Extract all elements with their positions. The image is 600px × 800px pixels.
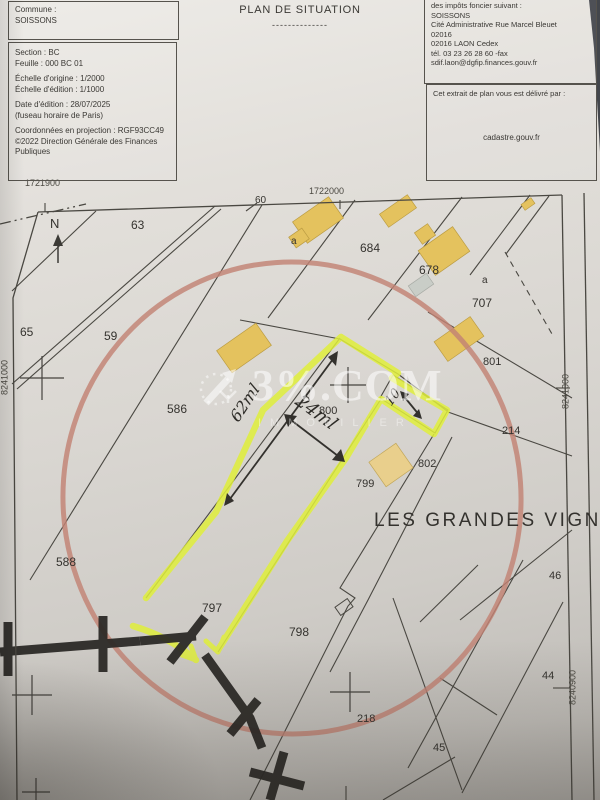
parcel-586: 586	[167, 403, 187, 415]
north-arrow-icon	[53, 234, 63, 263]
office-address-lines: SOISSONSCité Administrative Rue Marcel B…	[431, 11, 590, 68]
text-line: Échelle d'édition : 1/1000	[15, 85, 170, 96]
commune-value: SOISSONS	[15, 15, 172, 26]
grid-coord-8241000-right: 8241000	[562, 370, 571, 414]
grid-cross-icons	[12, 356, 370, 800]
handwritten-measure-10: 10	[384, 386, 403, 408]
title-underline: --------------	[225, 20, 375, 30]
handwritten-measure-62ml: 62ml	[228, 381, 263, 425]
parcel-60: 60	[255, 196, 266, 206]
office-clipped-line: des impôts foncier suivant :	[431, 1, 590, 11]
parcel-684: 684	[360, 242, 380, 254]
text-line: Cité Administrative Rue Marcel Bleuet	[431, 20, 590, 30]
parcel-707: 707	[472, 297, 492, 309]
parcel-63: 63	[131, 219, 144, 231]
parcel-a-1: a	[291, 237, 297, 247]
black-marker-crosses	[0, 616, 304, 800]
parcel-588: 588	[56, 556, 76, 568]
parcel-boundary-lines	[12, 195, 572, 800]
grid-coord-1722000: 1722000	[309, 187, 344, 196]
building-footprints	[217, 195, 535, 616]
issued-label: Cet extrait de plan vous est délivré par…	[433, 89, 590, 99]
parcel-801: 801	[483, 357, 501, 368]
text-line: SOISSONS	[431, 11, 590, 21]
parcel-44: 44	[542, 671, 554, 682]
handwritten-measure-24ml: 24ml	[291, 393, 340, 433]
cadastral-plan-photo: 17219001722000824100082410008240900N6360…	[0, 0, 600, 800]
parcel-797: 797	[202, 602, 222, 614]
text-line: tél. 03 23 26 28 60 -fax	[431, 49, 590, 59]
grid-coord-8241000-left: 8241000	[1, 356, 10, 400]
parcel-65: 65	[20, 326, 33, 338]
parcel-46: 46	[549, 571, 561, 582]
text-line: 02016 LAON Cedex	[431, 39, 590, 49]
parcel-a-2: a	[482, 276, 488, 286]
cadastre-site-label: cadastre.gouv.fr	[433, 133, 590, 142]
issued-by-box: Cet extrait de plan vous est délivré par…	[426, 84, 597, 181]
yellow-highlight-parcel	[133, 337, 447, 660]
commune-label: Commune :	[15, 4, 172, 15]
parcel-800: 800	[319, 406, 337, 417]
parcel-802: 802	[418, 459, 436, 470]
north-label: N	[50, 217, 59, 230]
parcel-59: 59	[104, 330, 117, 342]
watermark-subtitle: IMMOBILIER	[258, 417, 443, 429]
tax-office-box: des impôts foncier suivant : SOISSONSCit…	[424, 0, 597, 84]
parcel-798: 798	[289, 626, 309, 638]
lieu-dit-les-grandes-vignes: LES GRANDES VIGNES	[374, 511, 600, 530]
coordinate-ticks	[45, 200, 570, 688]
text-line: (fuseau horaire de Paris)	[15, 111, 170, 122]
text-line: Publiques	[15, 147, 170, 158]
grid-coord-8240900: 8240900	[569, 666, 578, 710]
red-circle-annotation	[47, 247, 537, 750]
parcel-45: 45	[433, 743, 445, 754]
watermark-brand: 3%.COM	[252, 360, 443, 411]
plan-title: PLAN DE SITUATION	[225, 4, 375, 16]
parcel-218: 218	[357, 714, 375, 725]
text-line: 02016	[431, 30, 590, 40]
sheet-details-box: Section : BCFeuille : 000 BC 01Échelle d…	[8, 42, 177, 181]
text-line: Coordonnées en projection : RGF93CC49	[15, 126, 170, 137]
text-line: ©2022 Direction Générale des Finances	[15, 137, 170, 148]
text-line: Feuille : 000 BC 01	[15, 59, 170, 70]
parcel-214: 214	[502, 426, 520, 437]
parcel-799: 799	[356, 479, 374, 490]
map-frame	[0, 193, 594, 800]
text-line: Échelle d'origine : 1/2000	[15, 74, 170, 85]
text-line: Section : BC	[15, 48, 170, 59]
watermark: 3%.COM IMMOBILIER	[198, 360, 443, 429]
pen-measure-arrows	[224, 351, 422, 506]
text-line: Date d'édition : 28/07/2025	[15, 100, 170, 111]
parcel-678: 678	[419, 264, 439, 276]
plan-title-block: PLAN DE SITUATION --------------	[225, 4, 375, 30]
commune-box: Commune : SOISSONS	[8, 1, 179, 40]
agency-logo-icon	[198, 361, 244, 411]
text-line: sdif.laon@dgfip.finances.gouv.fr	[431, 58, 590, 68]
